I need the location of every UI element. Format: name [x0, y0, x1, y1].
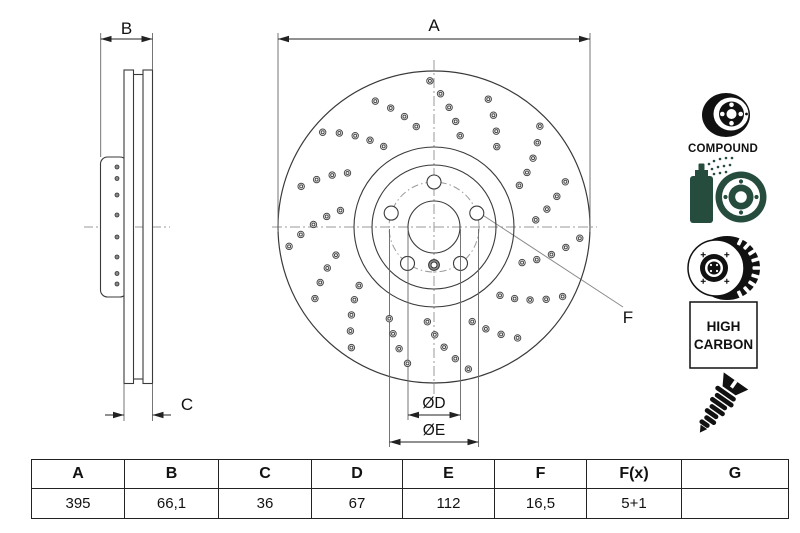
- spec-value-c: 36: [219, 489, 312, 519]
- spec-value-a: 395: [32, 489, 125, 519]
- coating-spray-disc-icon: [690, 157, 767, 223]
- compound-disc-icon: [702, 93, 750, 137]
- spec-value-d: 67: [312, 489, 403, 519]
- spec-value-f: 16,5: [495, 489, 587, 519]
- dim-label-b: B: [121, 19, 132, 38]
- spray-can-nozzle: [699, 164, 705, 171]
- dim-label-e: ØE: [423, 422, 445, 439]
- spec-header-a: A: [32, 460, 125, 489]
- countersunk-screw-icon: [688, 372, 749, 441]
- technical-drawing: B C: [0, 0, 800, 533]
- spec-value-fx: 5+1: [587, 489, 682, 519]
- dim-label-f: F: [623, 308, 633, 327]
- high-carbon-line2: CARBON: [694, 337, 753, 352]
- dim-label-a: A: [428, 16, 440, 35]
- spec-value-b: 66,1: [125, 489, 219, 519]
- vented-disc-icon: [688, 236, 761, 300]
- spec-header-row: A B C D E F F(x) G: [32, 460, 789, 489]
- brake-disc-spec-sheet: B C: [0, 0, 800, 533]
- compound-label: COMPOUND: [688, 143, 758, 155]
- spray-can-body: [690, 176, 713, 223]
- hub-hat-profile: [101, 157, 128, 297]
- front-view: A ØD ØE F: [272, 16, 633, 447]
- spec-header-b: B: [125, 460, 219, 489]
- spec-header-g: G: [682, 460, 789, 489]
- dim-label-c: C: [181, 395, 193, 414]
- spec-header-f: F: [495, 460, 587, 489]
- spec-value-g: [682, 489, 789, 519]
- high-carbon-badge: HIGH CARBON: [690, 302, 757, 368]
- icon-column: COMPOUND: [688, 93, 767, 441]
- spec-table: A B C D E F F(x) G 395 66,1 36 67 112 16…: [31, 459, 789, 519]
- side-view: B C: [84, 19, 193, 421]
- spec-header-e: E: [403, 460, 495, 489]
- disc-plate-left: [124, 70, 134, 384]
- disc-plate-right: [143, 70, 153, 384]
- spec-header-c: C: [219, 460, 312, 489]
- high-carbon-line1: HIGH: [707, 319, 741, 334]
- locating-screw-hole: [429, 260, 440, 271]
- spray-dots: [708, 157, 734, 176]
- spec-value-row: 395 66,1 36 67 112 16,5 5+1: [32, 489, 789, 519]
- spec-header-d: D: [312, 460, 403, 489]
- dim-label-d: ØD: [422, 395, 445, 412]
- spec-header-fx: F(x): [587, 460, 682, 489]
- spec-value-e: 112: [403, 489, 495, 519]
